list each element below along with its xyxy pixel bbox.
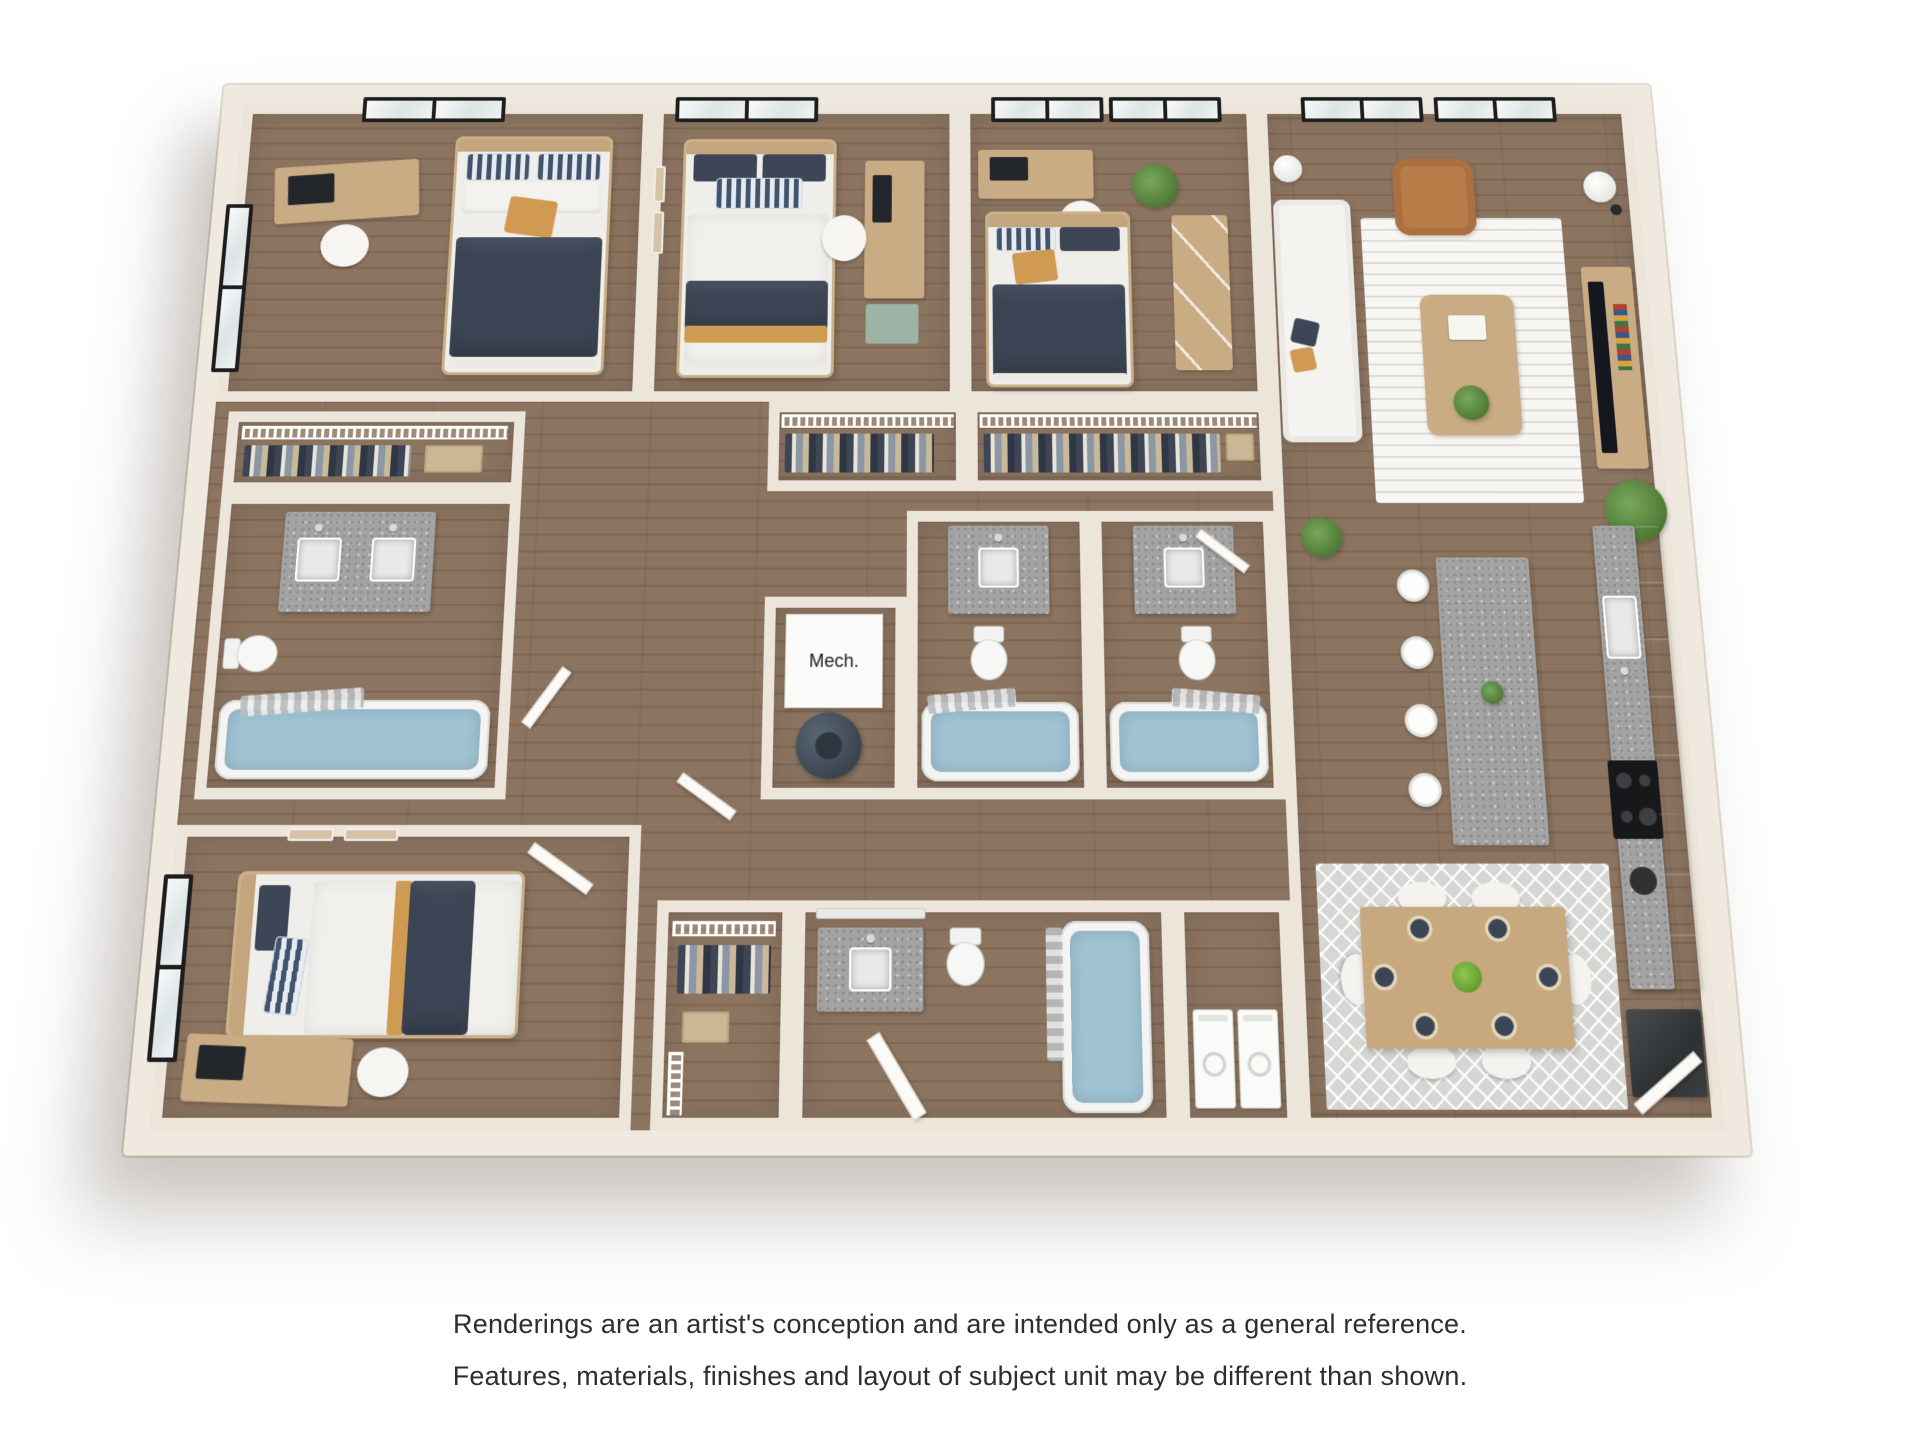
laptop-icon <box>990 157 1029 181</box>
duvet <box>449 237 602 357</box>
sink-icon <box>294 538 342 582</box>
mirror <box>816 908 925 919</box>
coffee-maker-icon <box>1629 867 1659 895</box>
bed <box>225 871 526 1038</box>
toilet-icon <box>1178 626 1216 681</box>
laptop-icon <box>288 173 334 205</box>
desk <box>274 159 419 225</box>
window-pane <box>1305 101 1361 119</box>
toilet-bowl <box>971 639 1008 680</box>
accent-pillow <box>504 196 559 239</box>
storage-box <box>1226 434 1255 461</box>
window-pane <box>1363 101 1419 119</box>
window-pane <box>1437 101 1493 119</box>
bed <box>985 212 1134 388</box>
stored-items <box>242 445 412 476</box>
mustard-throw <box>684 326 827 343</box>
hall-door <box>676 772 736 820</box>
dresser-with-mirror <box>1171 215 1233 370</box>
desk-chair <box>355 1047 410 1097</box>
headboard <box>458 139 611 152</box>
place-setting <box>1535 964 1562 991</box>
table-plant-icon <box>1452 385 1490 420</box>
striped-pillow <box>715 178 802 209</box>
basket <box>424 445 483 472</box>
headboard <box>686 142 833 155</box>
sofa-pillow <box>1289 347 1317 373</box>
island-plant-icon <box>1480 681 1504 704</box>
wire-shelf <box>672 921 776 936</box>
closet-c <box>650 900 794 1130</box>
water-heater-icon <box>795 712 862 779</box>
throw-blanket <box>401 881 476 1035</box>
wall-art <box>651 212 664 254</box>
window-pane <box>223 208 249 286</box>
tub-water <box>1119 711 1260 772</box>
window-icon <box>211 204 254 372</box>
dryer-icon <box>1237 1009 1281 1108</box>
bed-foot <box>448 359 597 369</box>
sofa-pillow <box>1290 317 1320 347</box>
wire-shelf <box>241 426 508 440</box>
faucet-icon <box>389 524 398 532</box>
headboard <box>228 874 256 1035</box>
disclaimer: Renderings are an artist's conception an… <box>0 1298 1920 1402</box>
window-pane <box>679 101 745 119</box>
dining-chair <box>1406 1045 1457 1079</box>
bathtub <box>921 702 1079 781</box>
window-pane <box>435 101 502 119</box>
window-icon <box>1109 97 1222 122</box>
faucet-icon <box>866 934 875 943</box>
bedroom-door <box>527 842 593 895</box>
bar-stool <box>1408 773 1443 807</box>
window-pane <box>151 969 180 1057</box>
toilet-bowl <box>947 942 985 986</box>
floor-lamp-icon <box>1582 171 1617 202</box>
closet-a <box>767 402 967 491</box>
faucet-icon <box>1179 534 1187 542</box>
window-pane <box>749 101 815 119</box>
plant-icon <box>1131 164 1178 208</box>
centerpiece-icon <box>1451 962 1483 993</box>
hanging-clothes <box>677 945 771 994</box>
pillow <box>466 153 531 180</box>
wall-art <box>287 828 334 841</box>
washer-panel <box>1198 1015 1228 1022</box>
sink-icon <box>369 538 416 582</box>
window-icon <box>991 97 1104 122</box>
place-setting <box>1484 916 1511 942</box>
toilet-bowl <box>235 635 279 672</box>
window-pane <box>1049 101 1100 119</box>
laundry-closet <box>1172 900 1299 1130</box>
bathtub <box>1060 921 1153 1113</box>
desk-chair <box>822 215 867 261</box>
washer-door <box>1202 1052 1226 1077</box>
bed <box>676 139 837 378</box>
water-heater-cap <box>815 732 842 759</box>
duvet <box>992 284 1127 376</box>
washer-icon <box>1192 1009 1236 1108</box>
window-icon <box>1301 97 1424 122</box>
toilet-icon <box>946 928 984 987</box>
desk <box>864 161 925 299</box>
pillow <box>1060 227 1120 251</box>
sectional-sofa <box>1273 200 1363 443</box>
dryer-panel <box>1243 1015 1273 1022</box>
desk <box>180 1033 354 1107</box>
tub-water <box>931 711 1071 772</box>
bed <box>441 136 614 375</box>
place-setting <box>1371 964 1398 991</box>
lamp-base <box>1610 204 1623 215</box>
room-mechanical: Mech. <box>761 597 907 800</box>
laptop-icon <box>195 1045 246 1081</box>
place-setting <box>1412 1013 1439 1040</box>
window-pane <box>1496 101 1553 119</box>
unit-outline: Mech. <box>123 85 1751 1156</box>
headboard <box>988 214 1127 227</box>
floorplan-3d: Mech. <box>123 85 1751 1156</box>
bookshelf <box>1613 304 1633 370</box>
double-vanity <box>278 512 436 612</box>
toilet-icon <box>971 626 1008 681</box>
window-pane <box>215 289 242 368</box>
room-bathroom-2 <box>906 511 1096 800</box>
book <box>1448 315 1487 340</box>
room-bedroom-4 <box>149 825 641 1130</box>
window-pane <box>995 101 1046 119</box>
basket <box>682 1012 730 1043</box>
mech-unit: Mech. <box>784 614 883 708</box>
pillow <box>537 153 602 180</box>
desk <box>978 150 1094 199</box>
window-icon <box>1433 97 1557 122</box>
dining-table <box>1360 907 1576 1049</box>
kitchen-island <box>1436 558 1550 846</box>
accent-pillow <box>1012 249 1059 285</box>
bathtub <box>1109 702 1269 781</box>
globe-lamp-icon <box>1273 155 1303 182</box>
window-icon <box>147 874 194 1062</box>
faucet-icon <box>315 524 324 532</box>
bathroom-door <box>867 1032 927 1121</box>
linen-closet-bath-1 <box>222 411 526 493</box>
desk-chair <box>319 224 371 266</box>
faucet-icon <box>994 534 1002 542</box>
wire-shelf <box>781 414 953 428</box>
bathroom-3-contents <box>1101 522 1273 788</box>
window-pane <box>366 101 433 119</box>
window-pane <box>1167 101 1218 119</box>
hanging-clothes <box>984 434 1221 473</box>
tub-water <box>1070 931 1144 1103</box>
toilet-bowl <box>1178 639 1216 680</box>
bar-stool <box>1400 636 1435 669</box>
wire-shelf <box>980 414 1258 428</box>
room-bedroom-2 <box>643 104 961 402</box>
vanity <box>948 526 1050 614</box>
vanity <box>817 928 924 1012</box>
sink-icon <box>978 548 1019 588</box>
toilet-icon <box>222 635 280 672</box>
place-setting <box>1491 1013 1518 1040</box>
kitchen-sink-icon <box>1602 596 1642 659</box>
vanity <box>1133 526 1237 614</box>
bar-stool <box>1396 570 1430 602</box>
pillow <box>996 227 1056 251</box>
room-great-room <box>1256 104 1725 1130</box>
shower-curtain <box>1046 928 1065 1061</box>
room-bedroom-1 <box>216 104 654 402</box>
wall-art <box>653 166 666 202</box>
floorplan-page: Mech. <box>0 0 1920 1440</box>
skylight-window-icon <box>362 97 506 122</box>
disclaimer-line-2: Features, materials, finishes and layout… <box>0 1350 1920 1402</box>
sink-icon <box>1163 548 1205 588</box>
coffee-table <box>1419 295 1523 436</box>
window-pane <box>160 879 189 965</box>
mech-label: Mech. <box>809 650 859 672</box>
wall-art <box>344 828 399 841</box>
closet-b <box>967 402 1273 491</box>
window-pane <box>1113 101 1164 119</box>
bar-stool <box>1404 704 1439 737</box>
disclaimer-line-1: Renderings are an artist's conception an… <box>0 1298 1920 1350</box>
tub-water <box>224 709 482 770</box>
bed-foot <box>683 362 827 372</box>
wire-shelf <box>667 1052 684 1116</box>
hanging-clothes <box>785 434 934 473</box>
hall-door <box>521 666 571 728</box>
plant-icon <box>1301 518 1343 558</box>
accent-chair <box>1392 159 1478 236</box>
bed-foot <box>993 373 1127 381</box>
room-bathroom-3 <box>1090 511 1285 800</box>
place-setting <box>1406 916 1433 942</box>
tv-console <box>1581 267 1650 469</box>
dryer-door <box>1247 1052 1272 1077</box>
room-bathroom-1 <box>194 493 521 799</box>
sink-icon <box>849 947 892 991</box>
skylight-window-icon <box>675 97 818 122</box>
faucet-icon <box>1620 667 1629 675</box>
monitor-icon <box>872 175 892 222</box>
room-bedroom-3 <box>960 104 1269 402</box>
file-cabinet <box>865 304 918 344</box>
room-bathroom-4 <box>790 900 1179 1130</box>
